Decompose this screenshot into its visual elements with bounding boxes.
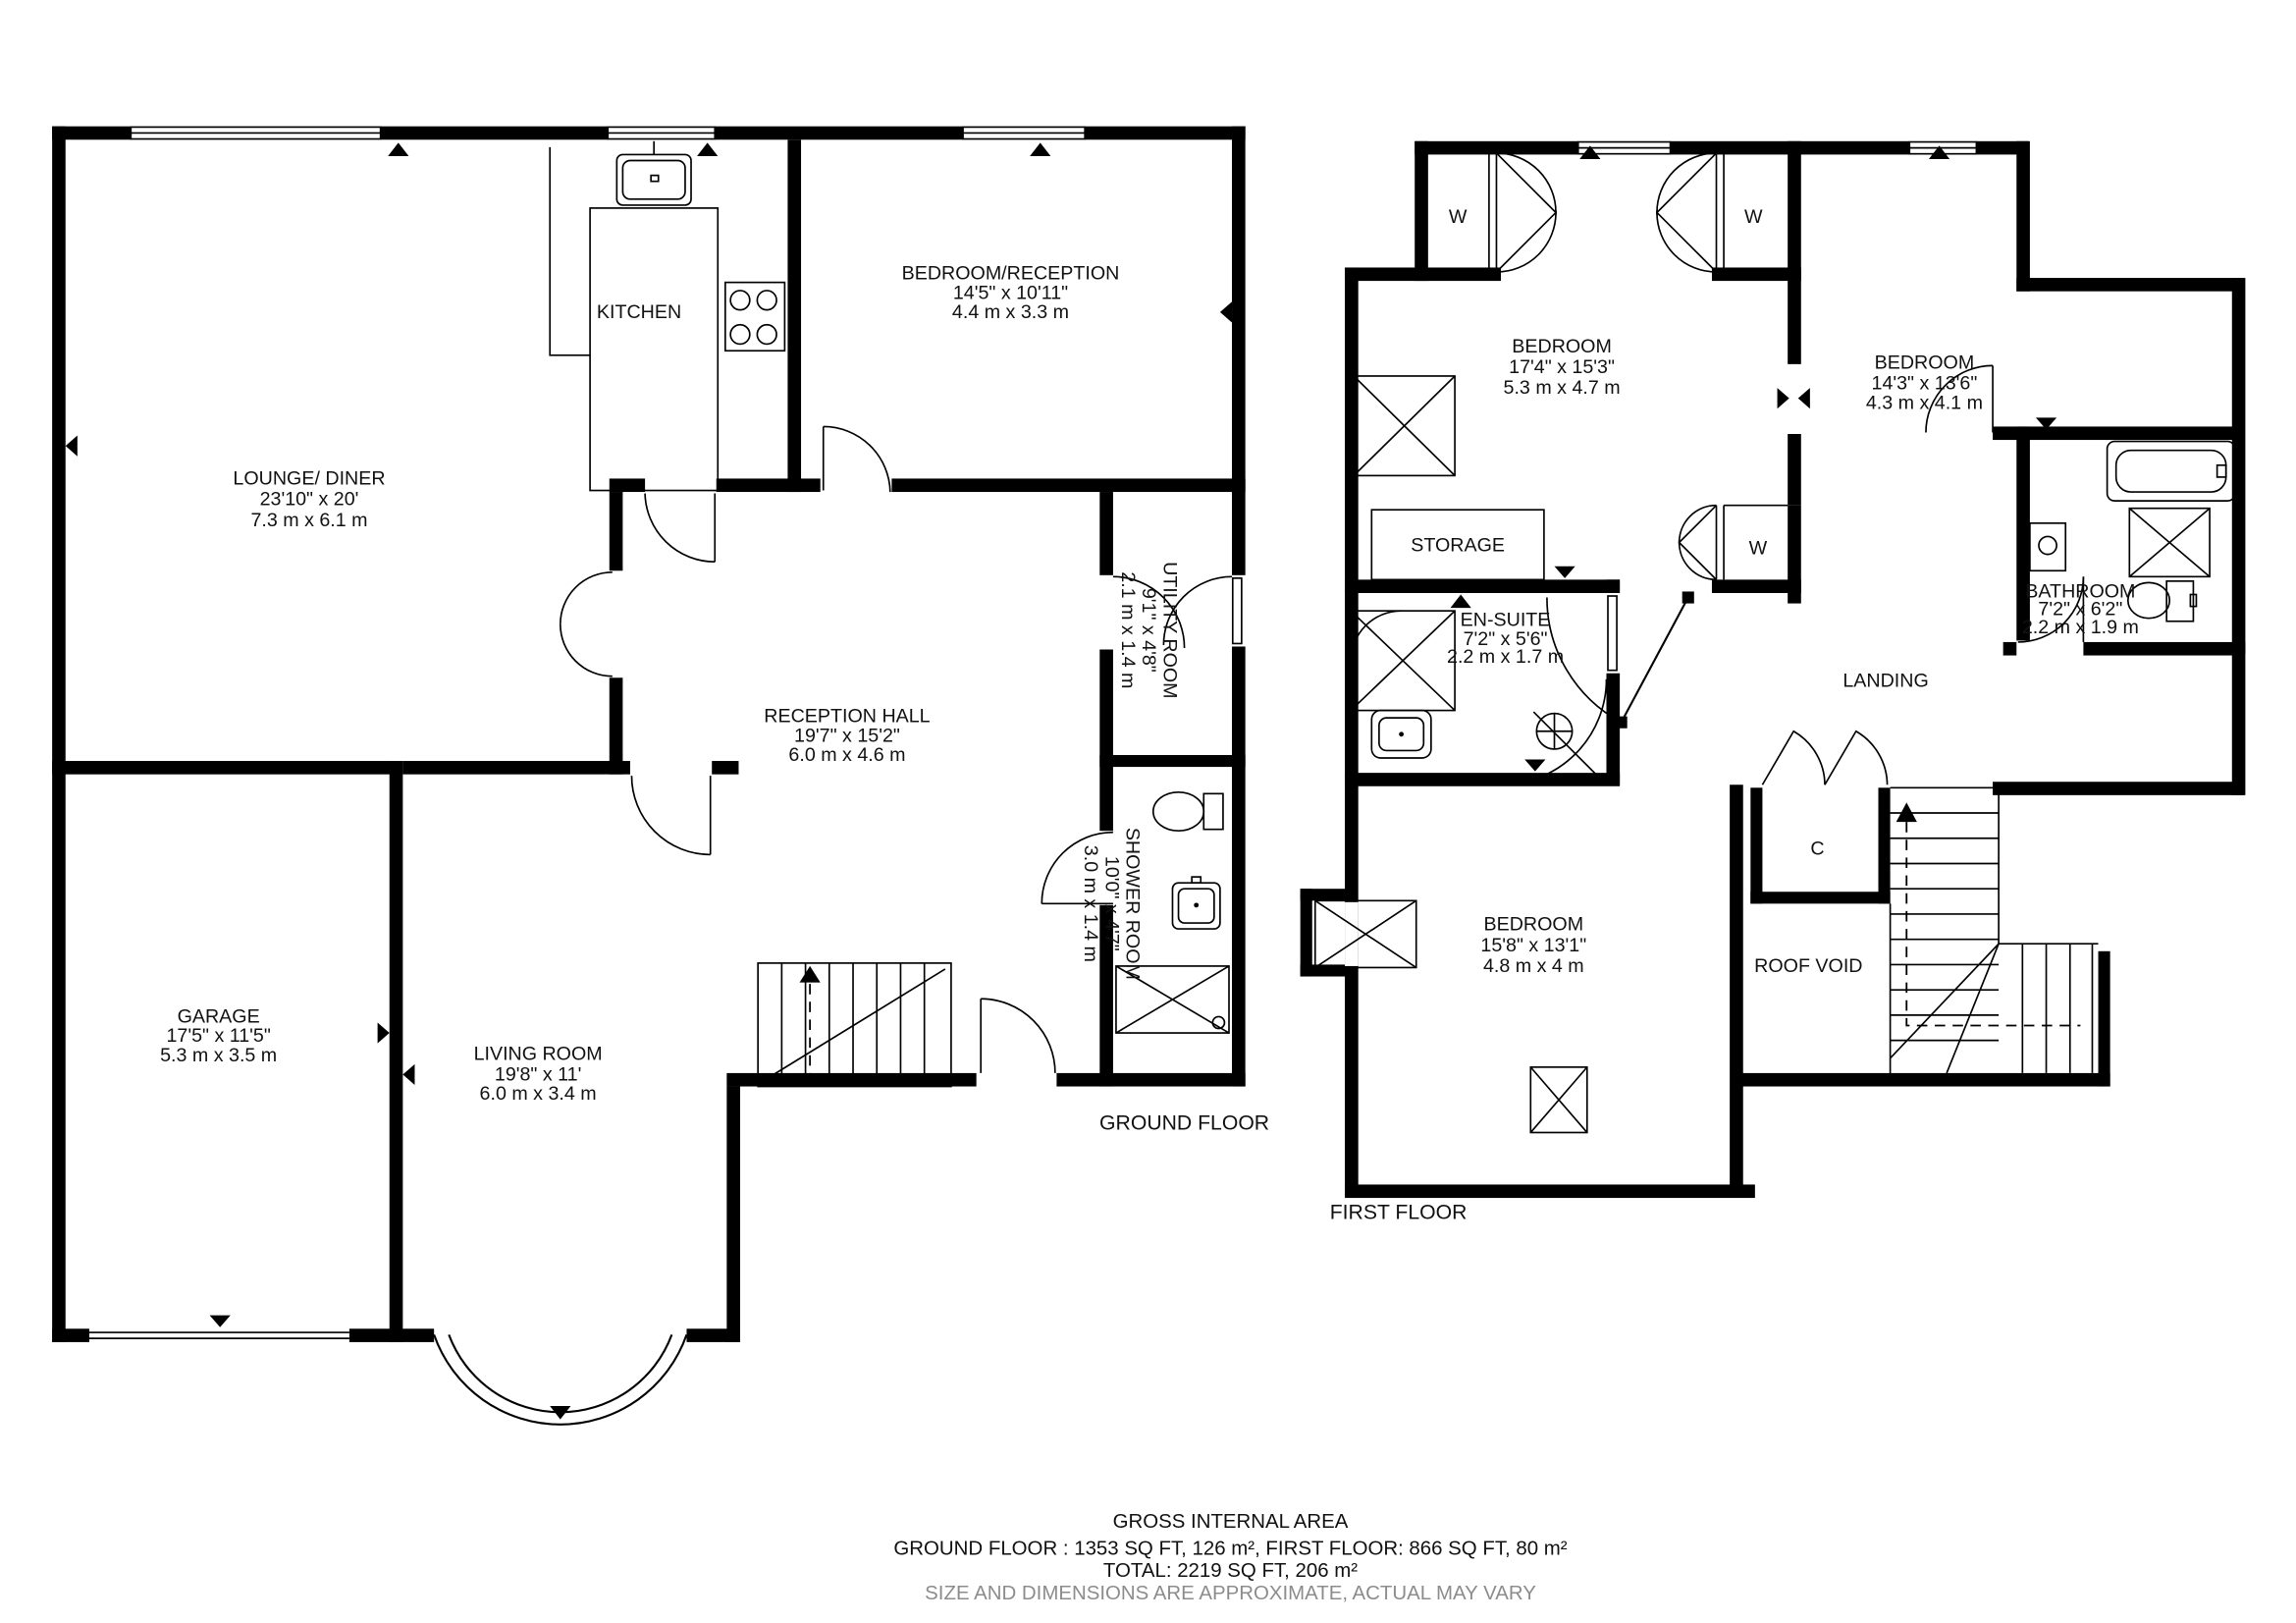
bedroom1-dims-imperial: 17'4" x 15'3" — [1509, 356, 1615, 378]
first-floor-title: FIRST FLOOR — [1330, 1201, 1468, 1223]
landing-label: LANDING — [1842, 670, 1928, 691]
wardrobe-1-label: W — [1449, 206, 1468, 228]
bedroom1-dims-metric: 5.3 m x 4.7 m — [1504, 377, 1621, 399]
lounge-label: LOUNGE/ DINER — [233, 467, 385, 489]
ground-stairs — [758, 963, 951, 1087]
ground-floor-title: GROUND FLOOR — [1099, 1111, 1269, 1134]
reception-hall-dims-metric: 6.0 m x 4.6 m — [788, 744, 905, 766]
wardrobe-2: W — [1657, 153, 1763, 272]
disclaimer-line: SIZE AND DIMENSIONS ARE APPROXIMATE, ACT… — [925, 1583, 1536, 1604]
utility-label: UTILITY ROOM — [1158, 562, 1180, 698]
floor-plan: LOUNGE/ DINER 23'10" x 20' 7.3 m x 6.1 m… — [0, 0, 2296, 1623]
storage-box: STORAGE — [1371, 510, 1544, 579]
bedroom3-dims-imperial: 15'8" x 13'1" — [1480, 935, 1586, 956]
bedroom2-label: BEDROOM — [1875, 352, 1975, 373]
stove-icon — [725, 283, 785, 352]
first-floor-doors — [1547, 365, 2083, 728]
ensuite-corner-shower-icon — [1501, 679, 1606, 784]
first-floor-walls — [1301, 141, 2246, 1198]
washbasin-icon — [1172, 877, 1219, 929]
shower-room-label: SHOWER ROOM — [1122, 828, 1144, 980]
wardrobe-1: W — [1449, 153, 1556, 272]
closet-doors — [1762, 731, 1887, 784]
toilet-icon — [1153, 792, 1223, 831]
wardrobe-3-label: W — [1749, 538, 1768, 560]
roof-void-label: ROOF VOID — [1754, 955, 1862, 977]
ground-floor-plan: LOUNGE/ DINER 23'10" x 20' 7.3 m x 6.1 m… — [52, 125, 1269, 1425]
ground-floor-windows — [89, 125, 1085, 1425]
bathroom-shower-icon — [2129, 509, 2210, 577]
ensuite-dims-metric: 2.2 m x 1.7 m — [1447, 646, 1564, 668]
ensuite-shower-icon — [1351, 611, 1455, 710]
first-floor-plan: W W W STORAGE — [1301, 139, 2246, 1223]
bathroom-sink-icon — [2030, 523, 2065, 570]
total-area-line: TOTAL: 2219 SQ FT, 206 m² — [1103, 1560, 1358, 1582]
bedroom-reception-dims-metric: 4.4 m x 3.3 m — [952, 301, 1069, 323]
living-room-dims-metric: 6.0 m x 3.4 m — [480, 1083, 597, 1105]
bedroom1-label: BEDROOM — [1512, 336, 1612, 357]
ensuite-basin-icon — [1371, 711, 1431, 758]
floor-areas-line: GROUND FLOOR : 1353 SQ FT, 126 m², FIRST… — [893, 1538, 1567, 1559]
bedroom2-dims-metric: 4.3 m x 4.1 m — [1866, 392, 1983, 413]
bathroom-dims-metric: 2.2 m x 1.9 m — [2022, 617, 2139, 638]
kitchen-sink-icon — [616, 141, 691, 205]
kitchen-label: KITCHEN — [597, 301, 681, 323]
shower-room-dims-imperial: 10'0" x 4'7" — [1100, 856, 1122, 951]
utility-dims-metric: 2.1 m x 1.4 m — [1117, 571, 1139, 688]
wardrobe-2-label: W — [1744, 206, 1763, 228]
storage-label: STORAGE — [1411, 535, 1505, 557]
ground-markers — [66, 142, 1232, 1419]
bathtub-icon — [2108, 442, 2235, 502]
bedroom3-dims-metric: 4.8 m x 4 m — [1483, 955, 1584, 977]
garage-dims-metric: 5.3 m x 3.5 m — [160, 1045, 277, 1066]
closet-label: C — [1810, 838, 1824, 859]
living-room-label: LIVING ROOM — [474, 1043, 603, 1064]
shower-room-dims-metric: 3.0 m x 1.4 m — [1080, 845, 1101, 962]
first-floor-markers — [1451, 145, 2057, 771]
lounge-dims-metric: 7.3 m x 6.1 m — [250, 510, 367, 531]
gross-internal-area-title: GROSS INTERNAL AREA — [1113, 1511, 1349, 1533]
bedroom3-label: BEDROOM — [1484, 914, 1584, 936]
lounge-dims-imperial: 23'10" x 20' — [260, 489, 359, 511]
first-floor-stairs — [1891, 787, 2099, 1086]
wardrobe-3: W — [1680, 506, 1789, 580]
bathroom-toilet-icon — [2128, 581, 2197, 622]
footer-area-summary: GROSS INTERNAL AREA GROUND FLOOR : 1353 … — [893, 1511, 1567, 1604]
utility-dims-imperial: 9'1" x 4'8" — [1138, 588, 1159, 673]
